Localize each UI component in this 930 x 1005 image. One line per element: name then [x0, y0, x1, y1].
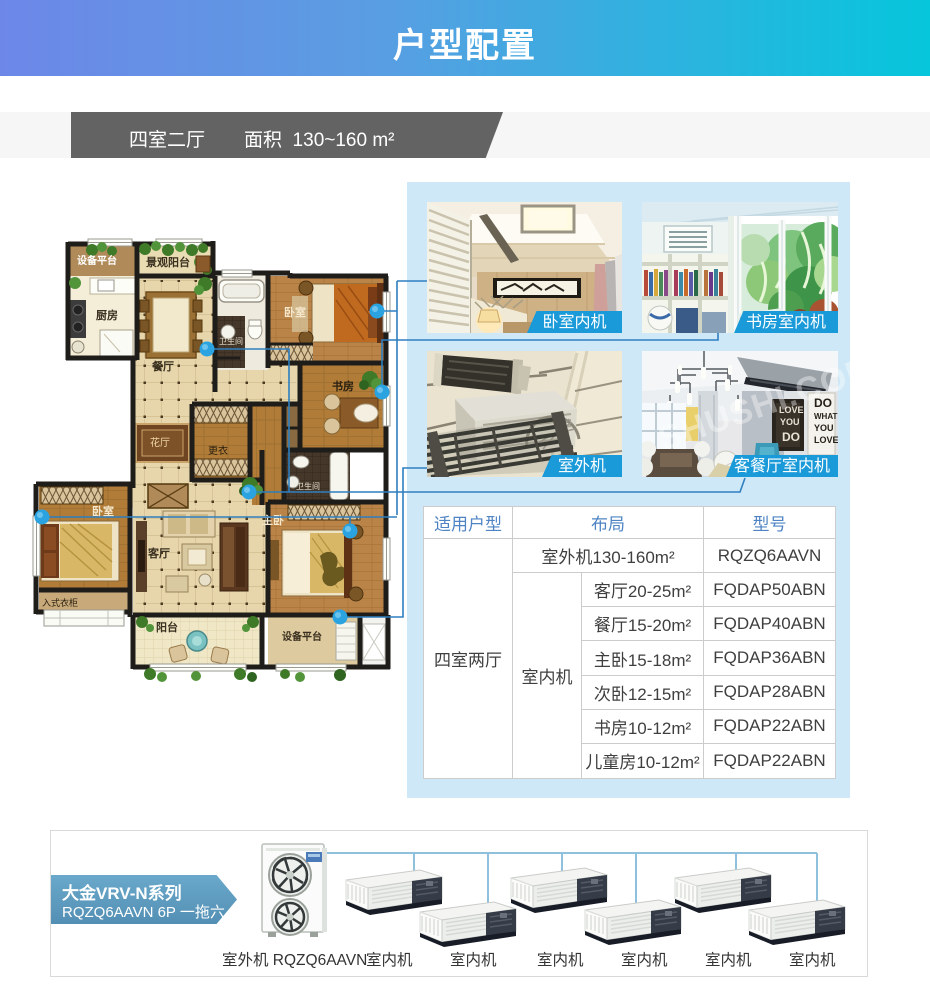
svg-text:卫生间: 卫生间: [219, 336, 243, 346]
svg-text:DO: DO: [814, 396, 832, 410]
svg-text:主卧: 主卧: [262, 513, 284, 527]
svg-text:景观阳台: 景观阳台: [145, 255, 190, 269]
svg-text:阳台: 阳台: [156, 620, 178, 634]
svg-text:餐厅: 餐厅: [151, 359, 174, 373]
svg-text:书房: 书房: [332, 379, 354, 393]
svg-text:厨房: 厨房: [96, 308, 118, 322]
svg-text:LOVE: LOVE: [814, 435, 838, 445]
svg-text:YOU: YOU: [814, 423, 834, 433]
svg-text:DO: DO: [782, 430, 800, 444]
svg-text:设备平台: 设备平台: [282, 630, 322, 643]
svg-text:设备平台: 设备平台: [77, 254, 117, 267]
svg-text:更衣: 更衣: [208, 444, 228, 457]
svg-text:花厅: 花厅: [150, 436, 170, 449]
svg-text:YOU: YOU: [780, 417, 800, 427]
svg-text:WHAT: WHAT: [814, 412, 838, 421]
svg-text:入式衣柜: 入式衣柜: [42, 597, 78, 608]
svg-text:LOVE: LOVE: [779, 405, 804, 415]
svg-text:卧室: 卧室: [284, 305, 306, 319]
svg-text:卧室: 卧室: [92, 504, 114, 518]
svg-text:客厅: 客厅: [147, 546, 170, 560]
svg-text:卫生间: 卫生间: [296, 481, 320, 491]
